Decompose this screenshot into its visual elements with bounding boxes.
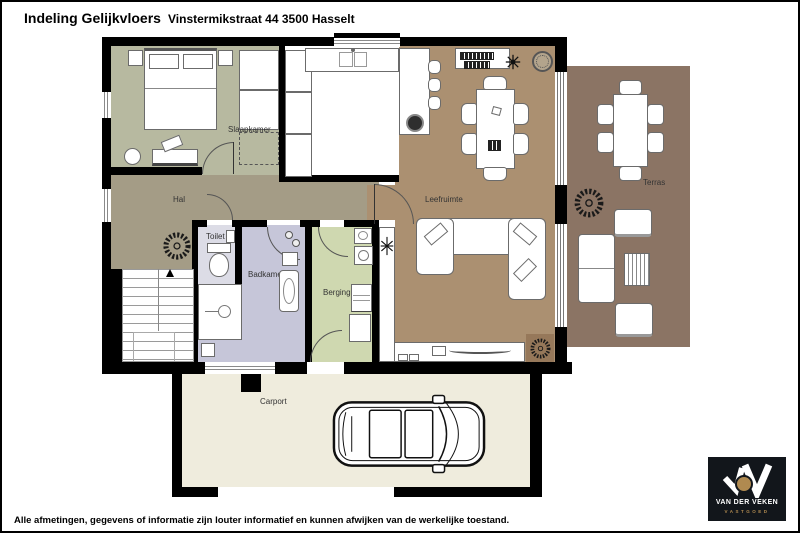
shower-arm xyxy=(205,311,219,312)
bed-blanket-line xyxy=(145,88,216,89)
door-leaf-slaapkamer xyxy=(233,142,234,174)
peninsula-sink xyxy=(406,114,424,132)
nightstand-left xyxy=(128,50,143,66)
wall-slaapkamer-hal xyxy=(111,167,202,175)
wardrobe-2 xyxy=(239,90,279,130)
label-carport: Carport xyxy=(260,397,287,406)
terrace-chair-bottom xyxy=(619,166,642,181)
wall-right-mid xyxy=(555,185,567,224)
wall-carport-left xyxy=(172,374,182,497)
wall-hal-south-2 xyxy=(232,220,267,227)
kitchen-tall-cabinet-2 xyxy=(285,92,312,134)
dining-chair-right-2 xyxy=(513,133,529,155)
tv-cabinet-box-3 xyxy=(432,346,446,356)
brand-name: VAN DER VEKEN xyxy=(708,499,786,506)
basket-inner xyxy=(536,55,549,68)
floor-plan-page: Indeling Gelijkvloers Vinstermikstraat 4… xyxy=(0,0,800,533)
wall-right-top xyxy=(555,37,567,72)
bed-pillow-right xyxy=(183,54,213,69)
wall-carport-bottom-left xyxy=(172,487,218,497)
kitchen-faucet xyxy=(351,48,355,52)
terrace-side-table xyxy=(624,253,650,286)
dining-deco-2 xyxy=(488,140,501,151)
dining-chair-bottom xyxy=(483,167,507,181)
brand-tagline: VASTGOED xyxy=(708,509,786,514)
wall-top-left xyxy=(102,37,334,46)
staircase-landing xyxy=(133,332,175,361)
wall-stair-side xyxy=(102,269,122,374)
plant-icon-living xyxy=(528,336,553,361)
nightstand-right xyxy=(218,50,233,66)
small-plant-icon xyxy=(380,235,394,257)
dining-chair-right-1 xyxy=(513,103,529,125)
fern-plant-icon xyxy=(505,54,521,70)
terrace-chair-top xyxy=(619,80,642,95)
page-address: Vinstermikstraat 44 3500 Hasselt xyxy=(168,12,355,26)
toilet-cabinet xyxy=(226,230,235,243)
wall-right-bottom xyxy=(555,327,567,362)
room-hal-2 xyxy=(285,182,379,220)
window-slaapkamer xyxy=(102,92,111,118)
wall-top-right xyxy=(400,37,567,46)
berging-shelf-lines xyxy=(353,291,370,305)
wall-toilet-badkamer xyxy=(235,227,242,284)
dining-chair-left-2 xyxy=(461,133,477,155)
label-toilet: Toilet xyxy=(206,232,225,241)
room-hal xyxy=(111,175,285,220)
plant-icon xyxy=(160,229,194,263)
door-leaf-leefruimte xyxy=(374,184,375,224)
staircase-divider xyxy=(158,269,159,331)
terrace-plant-icon xyxy=(571,185,607,221)
bar-stool-3 xyxy=(428,96,441,110)
terrace-chair-left-1 xyxy=(597,104,614,125)
page-title: Indeling Gelijkvloers xyxy=(24,10,161,26)
wall-carport-right xyxy=(530,374,542,497)
bath-mat xyxy=(201,343,215,357)
window-badkamer xyxy=(205,364,275,372)
dining-table xyxy=(476,89,515,169)
label-leefruimte: Leefruimte xyxy=(425,195,463,204)
label-hal: Hal xyxy=(173,195,185,204)
wall-bottom-2 xyxy=(275,362,307,374)
window-living-south xyxy=(555,224,567,327)
lounge-chair-top xyxy=(614,209,652,237)
sideboard-item-2 xyxy=(464,61,490,69)
wall-stub xyxy=(241,374,261,392)
wardrobe-1 xyxy=(239,50,279,90)
terrace-chair-right-1 xyxy=(647,104,664,125)
stairs-direction-arrow xyxy=(166,269,174,277)
toilet-bowl xyxy=(209,253,229,277)
sideboard-item-1 xyxy=(460,52,494,60)
kitchen-sink-1 xyxy=(339,52,353,67)
label-terras: Terras xyxy=(643,178,665,187)
lounge-chair-bottom xyxy=(615,303,653,337)
terrace-table xyxy=(613,94,648,167)
bed-pillow-left xyxy=(149,54,179,69)
terrace-chair-left-2 xyxy=(597,132,614,153)
berging-shelf-2 xyxy=(349,314,371,342)
bathroom-cabinet xyxy=(282,252,298,266)
tv-cabinet-box-2 xyxy=(409,354,419,361)
wardrobe-swing-dashed xyxy=(239,132,279,165)
brand-logo-mark xyxy=(717,460,777,498)
bar-stool-1 xyxy=(428,60,441,74)
wall-bottom-3 xyxy=(344,362,572,374)
bathroom-plant-icon-2 xyxy=(292,239,300,247)
bar-stool-2 xyxy=(428,78,441,92)
window-hal xyxy=(102,189,111,222)
car-top-view xyxy=(330,394,488,474)
dresser xyxy=(152,149,198,166)
terrace-chair-right-2 xyxy=(647,132,664,153)
window-kitchen xyxy=(334,38,400,47)
washing-machine-drum xyxy=(358,250,369,261)
dining-chair-left-1 xyxy=(461,103,477,125)
kitchen-sink-2 xyxy=(354,52,367,67)
shower-head-icon xyxy=(218,305,231,318)
dining-chair-top xyxy=(483,76,507,90)
stool xyxy=(124,148,141,165)
wall-bottom-1 xyxy=(102,362,205,374)
berging-sink-bowl xyxy=(358,231,368,240)
label-slaapkamer: Slaapkamer xyxy=(228,125,271,134)
wall-carport-bottom-right xyxy=(394,487,542,497)
window-living-north xyxy=(555,72,567,185)
label-berging: Berging xyxy=(323,288,351,297)
tv-screen xyxy=(449,347,511,354)
brand-logo: VAN DER VEKEN VASTGOED xyxy=(708,457,786,521)
terrace-sofa-split xyxy=(579,268,614,269)
wall-badkamer-berging xyxy=(305,220,312,362)
disclaimer-text: Alle afmetingen, gegevens of informatie … xyxy=(14,515,509,526)
kitchen-tall-cabinet-3 xyxy=(285,134,312,177)
washbasin-bowl xyxy=(283,278,295,304)
bathroom-plant-icon xyxy=(285,231,293,239)
toilet-tank xyxy=(207,243,231,253)
wall-berging-living xyxy=(372,220,379,362)
tv-cabinet-box-1 xyxy=(398,354,408,361)
